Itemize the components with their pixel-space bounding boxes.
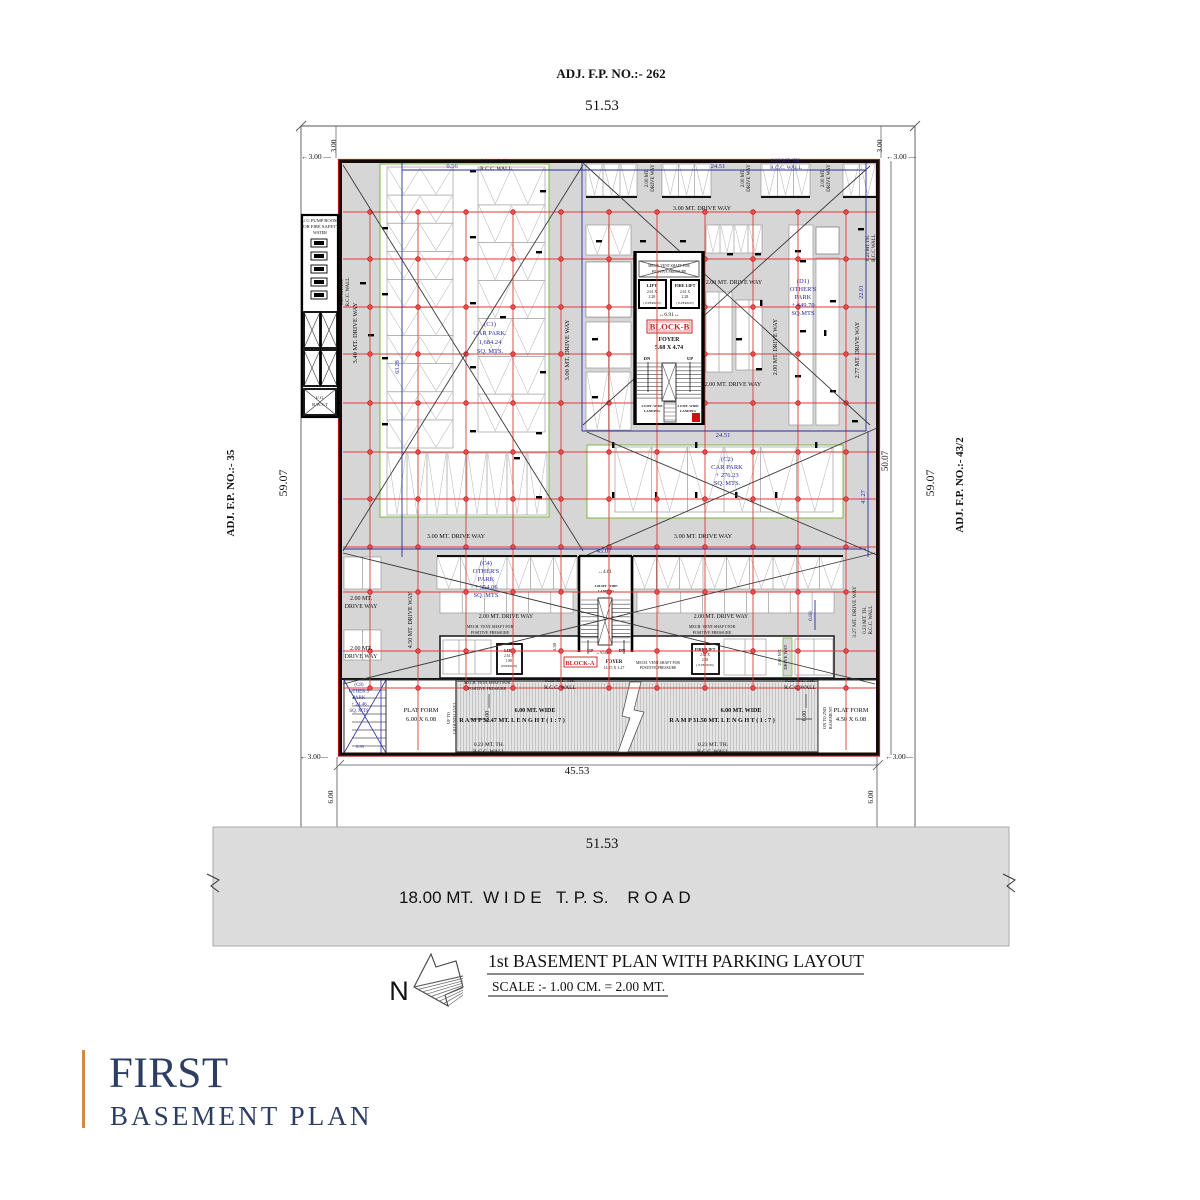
svg-text:DRIVE WAY: DRIVE WAY [827, 164, 832, 192]
svg-text:5.68 X 4.74: 5.68 X 4.74 [655, 345, 683, 351]
svg-text:2.00 MT.: 2.00 MT. [350, 596, 373, 602]
svg-text:R.C.C WALL: R.C.C WALL [872, 234, 877, 262]
svg-text:2.00 MT.: 2.00 MT. [741, 169, 746, 187]
svg-text:3.50: 3.50 [552, 642, 557, 651]
svg-text:3.40 MT. DRIVE WAY: 3.40 MT. DRIVE WAY [352, 302, 359, 363]
svg-text:6.00: 6.00 [326, 790, 335, 803]
svg-text:PARK: PARK [478, 576, 495, 583]
svg-text:ADJ. F.P. NO.:- 43/2: ADJ. F.P. NO.:- 43/2 [954, 437, 966, 533]
svg-text:6.00: 6.00 [802, 711, 808, 722]
svg-text:R A M P 32.47 MT. L E N G H: R A M P 32.47 MT. L E N G H T ( 1 : 7 ) [459, 717, 565, 724]
svg-text:←3.00 —: ←3.00 — [886, 152, 917, 161]
svg-text:41.27: 41.27 [861, 490, 867, 504]
svg-text:2.61 X: 2.61 X [647, 290, 658, 294]
svg-text:3.00 MT. DRIVE WAY: 3.00 MT. DRIVE WAY [673, 205, 732, 212]
svg-text:2.00 MT. DRIVE WAY: 2.00 MT. DRIVE WAY [479, 614, 534, 620]
svg-text:6.88: 6.88 [808, 611, 814, 621]
svg-text:PARK: PARK [795, 294, 812, 301]
svg-text:SQ. MTS: SQ. MTS [474, 592, 499, 599]
svg-text:+ 276.23: + 276.23 [715, 472, 738, 479]
svg-text:LANDING: LANDING [680, 409, 696, 413]
svg-text:PLAT FORM: PLAT FORM [404, 707, 439, 714]
svg-text:(C8): (C8) [354, 683, 364, 688]
svg-text:0.23 MT. TH.: 0.23 MT. TH. [474, 742, 505, 748]
svg-text:POSITIVE PRESSURE: POSITIVE PRESSURE [468, 686, 507, 691]
svg-text:LANDING: LANDING [644, 409, 660, 413]
svg-text:6.00 X 6.08: 6.00 X 6.08 [406, 716, 436, 723]
svg-text:2.00 MT. DRIVE WAY: 2.00 MT. DRIVE WAY [773, 318, 779, 375]
svg-text:R.C.C. WALL: R.C.C. WALL [346, 278, 351, 307]
svg-text:18.00 MT. W I D E T. P. S.: 18.00 MT. W I D E T. P. S. R O A D [399, 888, 691, 907]
svg-text:+ 24.46: + 24.46 [351, 703, 367, 708]
svg-text:BLOCK-B: BLOCK-B [650, 322, 690, 332]
svg-text:4.50 X 6.08: 4.50 X 6.08 [836, 716, 866, 723]
svg-text:+ 449.70: + 449.70 [791, 302, 814, 309]
svg-text:UP TO: UP TO [446, 712, 451, 724]
svg-text:45.53: 45.53 [565, 765, 590, 777]
svg-text:ADJ. F.P. NO.:- 262: ADJ. F.P. NO.:- 262 [556, 66, 665, 81]
svg-text:22.01: 22.01 [859, 285, 865, 299]
svg-text:U.G.: U.G. [316, 395, 325, 400]
svg-text:2.00 MT.: 2.00 MT. [777, 649, 782, 666]
svg-text:FIRE LIFT: FIRE LIFT [675, 283, 696, 288]
svg-text:R.W.S.T: R.W.S.T [312, 402, 328, 407]
svg-text:2.61 X: 2.61 X [680, 290, 691, 294]
svg-text:SQ. MTS.: SQ. MTS. [714, 480, 741, 487]
svg-text:24.51: 24.51 [711, 163, 726, 170]
svg-text:WATER: WATER [313, 230, 327, 235]
svg-text:CAR PARK.: CAR PARK. [473, 330, 507, 337]
svg-text:(C1): (C1) [484, 321, 496, 328]
svg-text:SCALE :- 1.00 CM. = 2.00 MT.: SCALE :- 1.00 CM. = 2.00 MT. [492, 979, 665, 994]
svg-text:14.15 X 3.27: 14.15 X 3.27 [604, 665, 625, 670]
svg-text:2.28: 2.28 [649, 295, 656, 299]
svg-text:DRIVE WAY: DRIVE WAY [747, 164, 752, 192]
svg-text:DN: DN [644, 356, 651, 361]
svg-text:←3.00—: ←3.00— [300, 752, 329, 761]
svg-text:DN: DN [619, 648, 626, 653]
svg-text:(C4): (C4) [480, 560, 492, 567]
svg-text:←3.00—: ←3.00— [885, 752, 914, 761]
svg-text:(13 PERSON): (13 PERSON) [643, 301, 660, 305]
svg-text:R.C.C. WALL: R.C.C. WALL [869, 606, 874, 635]
svg-text:←3.00 —: ←3.00 — [301, 152, 332, 161]
svg-text:8.93: 8.93 [356, 744, 365, 749]
svg-text:0.23 MT. TH.: 0.23 MT. TH. [771, 158, 802, 164]
svg-text:R.C.C. WALL: R.C.C. WALL [480, 166, 512, 172]
svg-text:PARK: PARK [353, 696, 366, 701]
svg-text:FOR FIRE SAFETY: FOR FIRE SAFETY [301, 224, 340, 229]
svg-text:DRIVE WAY: DRIVE WAY [783, 644, 788, 670]
svg-text:U.G PUMP ROOM: U.G PUMP ROOM [302, 218, 338, 223]
svg-text:(8 PERSON): (8 PERSON) [501, 664, 517, 668]
svg-text:0.23 MT.TH.: 0.23 MT.TH. [340, 279, 345, 305]
svg-text:0.56: 0.56 [446, 163, 458, 170]
svg-text:59.07: 59.07 [276, 470, 290, 497]
svg-text:3.00 MT. DRIVE WAY: 3.00 MT. DRIVE WAY [427, 533, 486, 540]
svg-text:FIRST: FIRST [109, 1050, 229, 1097]
svg-text:N: N [389, 976, 409, 1006]
svg-text:POSITIVE PRESSURE: POSITIVE PRESSURE [471, 630, 510, 635]
svg-text:MECH. VENT.SHAFT FOR: MECH. VENT.SHAFT FOR [464, 680, 511, 685]
svg-text:0.23 MT. TH.: 0.23 MT. TH. [545, 678, 576, 684]
svg-text:CAR PARK: CAR PARK [711, 464, 743, 471]
svg-text:BASEMENT PLAN: BASEMENT PLAN [110, 1101, 373, 1131]
svg-text:0.23 MT.TH.: 0.23 MT.TH. [866, 235, 871, 261]
svg-text:LIFT: LIFT [647, 283, 657, 288]
svg-text:1.80: 1.80 [506, 659, 512, 663]
svg-text:R.C.C. WALL: R.C.C. WALL [770, 165, 802, 171]
svg-text:2.00 MT.: 2.00 MT. [821, 169, 826, 187]
svg-text:(13 PERSON): (13 PERSON) [676, 301, 693, 305]
svg-text:2.0 MT. WIDE: 2.0 MT. WIDE [641, 404, 663, 408]
svg-text:ON TO 2ND: ON TO 2ND [822, 707, 827, 729]
svg-text:UP: UP [687, 356, 693, 361]
svg-text:BLOCK-A: BLOCK-A [566, 660, 595, 667]
svg-text:4.50 MT. DRIVE WAY: 4.50 MT. DRIVE WAY [408, 591, 414, 648]
svg-text:↔6.91↔: ↔6.91↔ [659, 312, 680, 318]
svg-text:51.53: 51.53 [585, 98, 619, 114]
svg-text:0.23 MT. TH.: 0.23 MT. TH. [863, 606, 868, 633]
svg-text:6.00 MT. WIDE: 6.00 MT. WIDE [515, 708, 556, 714]
svg-text:OTHER'S: OTHER'S [349, 690, 370, 695]
svg-text:(C2): (C2) [721, 456, 733, 463]
svg-text:3.00 MT. DRIVE WAY: 3.00 MT. DRIVE WAY [674, 533, 733, 540]
svg-text:6.00: 6.00 [866, 790, 875, 803]
svg-text:0.23 MT. TH.: 0.23 MT. TH. [698, 742, 729, 748]
svg-text:3.27 MT. DRIVE WAY: 3.27 MT. DRIVE WAY [852, 586, 858, 638]
svg-text:R.C.C. WALL: R.C.C. WALL [473, 749, 505, 755]
svg-text:45.07: 45.07 [597, 548, 612, 555]
svg-text:6.00 MT. WIDE: 6.00 MT. WIDE [721, 708, 762, 714]
svg-text:6.00: 6.00 [485, 711, 491, 722]
svg-text:1st BASEMENT PLAN WITH PARKI: 1st BASEMENT PLAN WITH PARKING LAYOUT [488, 951, 864, 971]
svg-text:MECH. VENT.SHAFT FOR: MECH. VENT.SHAFT FOR [689, 624, 736, 629]
svg-text:DRIVE WAY: DRIVE WAY [345, 654, 379, 660]
svg-text:R.C.C. WALL: R.C.C. WALL [544, 685, 576, 691]
svg-text:FOYER: FOYER [659, 337, 681, 343]
svg-text:2.77 MT. DRIVE WAY: 2.77 MT. DRIVE WAY [855, 321, 861, 378]
svg-text:MECH. VENT.SHAFT FOR: MECH. VENT.SHAFT FOR [648, 264, 690, 268]
svg-text:PLAT FORM: PLAT FORM [834, 707, 869, 714]
svg-text:2.00 MT. DRIVE WAY: 2.00 MT. DRIVE WAY [694, 614, 749, 620]
svg-text:POSITIVE PRESSURE: POSITIVE PRESSURE [640, 666, 677, 670]
svg-text:2.00 MT. DRIVE WAY: 2.00 MT. DRIVE WAY [705, 382, 762, 388]
svg-text:3.00: 3.00 [329, 139, 338, 152]
svg-text:OTHER'S: OTHER'S [473, 568, 500, 575]
svg-text:50.07: 50.07 [880, 450, 890, 471]
svg-text:(D1): (D1) [797, 278, 809, 285]
svg-text:2.28: 2.28 [682, 295, 689, 299]
svg-text:59.07: 59.07 [923, 470, 937, 497]
svg-text:2.00 MT. WIDE: 2.00 MT. WIDE [594, 584, 618, 588]
svg-text:POSITIVE PRESSURE: POSITIVE PRESSURE [693, 630, 732, 635]
svg-text:0.23 MT. TH.: 0.23 MT. TH. [481, 159, 512, 165]
svg-text:+ 354.06: + 354.06 [474, 584, 498, 591]
svg-text:OTHER'S: OTHER'S [790, 286, 817, 293]
svg-text:DRIVE WAY: DRIVE WAY [651, 164, 656, 192]
svg-text:24.51: 24.51 [716, 432, 731, 439]
svg-text:3.00: 3.00 [875, 139, 884, 152]
svg-text:SQ. MTS.: SQ. MTS. [477, 348, 504, 355]
svg-text:MECH. VENT.SHAFT FOR: MECH. VENT.SHAFT FOR [636, 661, 680, 665]
svg-text:DRIVE WAY: DRIVE WAY [345, 604, 379, 610]
svg-text:0.23 MT. TH.: 0.23 MT. TH. [785, 678, 816, 684]
svg-text:R A M P 31.50 MT. L E N G H: R A M P 31.50 MT. L E N G H T ( 1 : 7 ) [669, 717, 775, 724]
svg-text:2.00 MT.: 2.00 MT. [645, 169, 650, 187]
svg-text:SQ.MTS: SQ.MTS [791, 310, 815, 317]
svg-text:51.53: 51.53 [586, 836, 619, 852]
svg-text:ADJ. F.P. NO.:- 35: ADJ. F.P. NO.:- 35 [225, 449, 237, 536]
svg-text:MECH. VENT.SHAFT FOR: MECH. VENT.SHAFT FOR [467, 624, 514, 629]
svg-text:2.0 MT. WIDE: 2.0 MT. WIDE [677, 404, 699, 408]
svg-text:2.00 MT. DRIVE WAY: 2.00 MT. DRIVE WAY [706, 280, 763, 286]
svg-text:BASEMENT: BASEMENT [828, 706, 833, 729]
svg-text:SQ. MTS: SQ. MTS [349, 709, 368, 714]
svg-text:2.00 MT.: 2.00 MT. [350, 646, 373, 652]
svg-text:↔4.61: ↔4.61 [598, 570, 612, 575]
svg-text:R.C.C. WALL: R.C.C. WALL [784, 685, 816, 691]
svg-text:R.C.C. WALL: R.C.C. WALL [697, 749, 729, 755]
svg-text:63.28: 63.28 [395, 360, 401, 374]
svg-text:3.00 MT. DRIVE WAY: 3.00 MT. DRIVE WAY [564, 319, 571, 380]
svg-text:1,684.24: 1,684.24 [479, 339, 503, 346]
